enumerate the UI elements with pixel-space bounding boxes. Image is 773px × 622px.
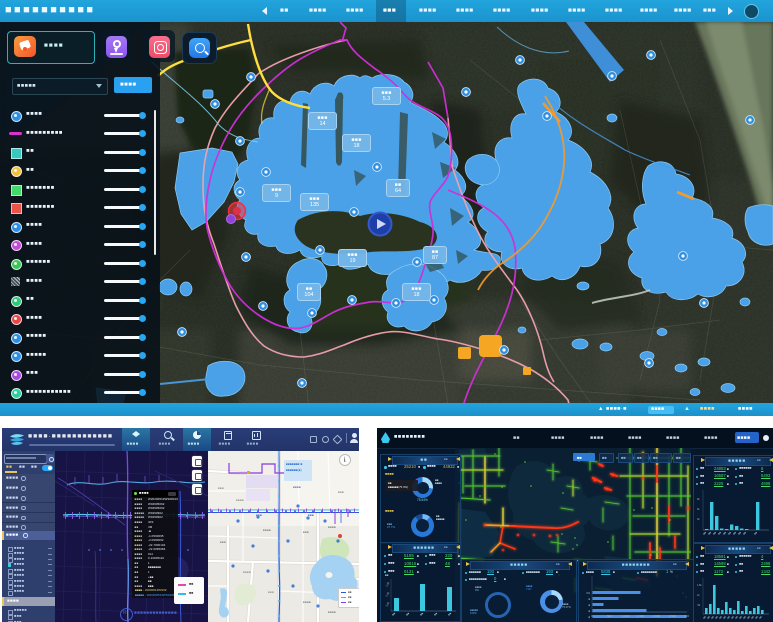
svg-text:1,000: 1,000 (622, 614, 629, 618)
svg-text:■■: ■■ (391, 611, 396, 616)
svg-text:2,00: 2,00 (384, 591, 390, 598)
svg-text:■: ■ (588, 598, 590, 601)
svg-text:1.5k: 1.5k (697, 584, 702, 587)
svg-text:■■: ■■ (743, 531, 748, 536)
svg-text:9k: 9k (697, 498, 700, 501)
svg-text:■■: ■■ (759, 615, 764, 620)
svg-text:0%: 0% (586, 591, 590, 595)
svg-text:3k: 3k (697, 518, 700, 521)
svg-text:■■: ■■ (405, 611, 410, 616)
svg-text:2,000: 2,000 (653, 614, 660, 618)
svg-text:■■: ■■ (433, 611, 438, 616)
svg-text:1,500: 1,500 (637, 614, 644, 618)
svg-text:■: ■ (588, 604, 590, 607)
svg-text:■■: ■■ (419, 611, 424, 616)
svg-text:500: 500 (607, 614, 612, 618)
svg-text:3,00: 3,00 (384, 601, 390, 608)
svg-text:2,500: 2,500 (669, 614, 676, 618)
svg-text:■: ■ (588, 610, 590, 613)
svg-text:1,00: 1,00 (384, 581, 390, 588)
svg-text:■■: ■■ (754, 531, 759, 536)
svg-text:6k: 6k (697, 508, 700, 511)
svg-text:■■: ■■ (447, 611, 452, 616)
svg-text:.5k: .5k (697, 604, 701, 607)
svg-text:1k: 1k (697, 594, 700, 597)
svg-text:3,000: 3,000 (684, 614, 689, 618)
